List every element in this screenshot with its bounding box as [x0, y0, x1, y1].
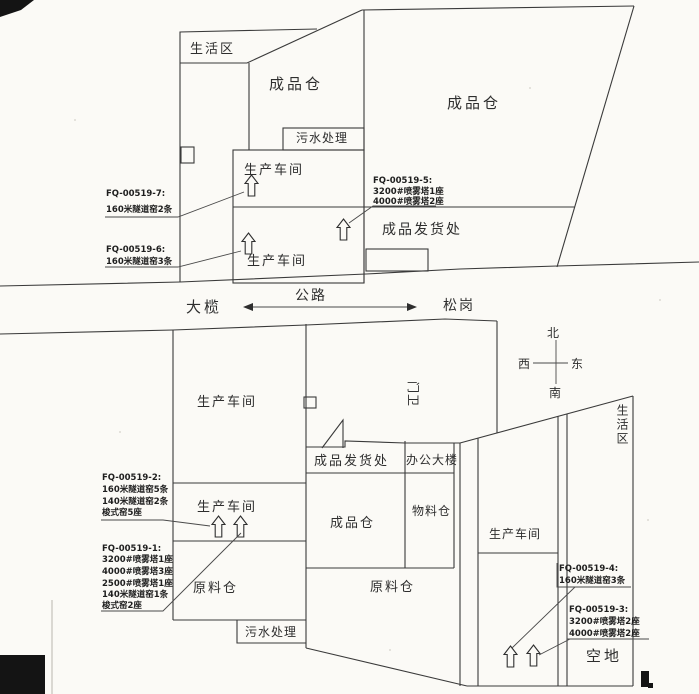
callout-fq2-id: FQ-00519-2: [102, 473, 161, 483]
callout-fq4-id: FQ-00519-4: [559, 564, 618, 574]
callout-fq2-line: 160米隧道窑5条 [102, 484, 169, 495]
callout-fq5: FQ-00519-5: 3200#喷雾塔1座 4000#喷雾塔2座 [349, 176, 444, 223]
callout-fq3-line: 3200#喷雾塔2座 [569, 616, 640, 627]
site-plan-page: 北 南 西 东 生活区 成品仓 成品仓 污水处理 生产车间 生产车间 成品发货处… [0, 0, 699, 694]
area-label-vacant-land: 空地 [586, 647, 622, 665]
area-label-office-building: 办公大楼 [406, 452, 458, 467]
kiln-chimney-icon [212, 516, 225, 537]
callout-fq3-line: 4000#喷雾塔2座 [569, 628, 640, 639]
arrowhead-east-icon [407, 303, 417, 311]
area-label-shipping-north: 成品发货处 [382, 221, 462, 238]
callout-fq2-leader [101, 520, 210, 526]
spray-tower-icon [527, 645, 540, 666]
area-label-sewage-south: 污水处理 [245, 625, 297, 639]
area-label-raw-warehouse-right: 原料仓 [370, 580, 415, 595]
callout-fq6-id: FQ-00519-6: [106, 245, 165, 255]
area-label-workshop-main: 生产车间 [197, 394, 257, 410]
callout-fq3-id: FQ-00519-3: [569, 605, 628, 615]
road-lines [0, 262, 699, 334]
callout-fq4-leader [512, 587, 575, 648]
compass-west-label: 西 [518, 357, 530, 371]
compass: 北 南 西 东 [518, 326, 583, 400]
kiln-chimney-icon [245, 175, 258, 196]
area-label-workshop-small: 生产车间 [197, 499, 257, 515]
scan-artifacts [0, 0, 661, 694]
callout-fq1-line: 4000#喷雾塔3座 [102, 566, 173, 577]
spray-tower-icon [337, 219, 350, 240]
corner-smudge-top-left [0, 0, 34, 17]
site-south-labels: 生产车间 生产车间 原料仓 污水处理 成品发货处 成品仓 办公大楼 物料仓 原料… [193, 381, 629, 665]
road-east-town-label: 松岗 [443, 298, 475, 314]
area-label-living-north: 生活区 [190, 42, 235, 57]
callout-fq5-leader [349, 206, 436, 223]
area-label-workshop-lower: 生产车间 [247, 253, 307, 269]
callout-fq6-line: 160米隧道窑3条 [106, 256, 173, 267]
compass-east-label: 东 [571, 357, 583, 371]
area-label-workshop-upper: 生产车间 [244, 162, 304, 178]
ink-dot-bottom-right [648, 683, 653, 688]
kiln-chimney-icon [504, 646, 517, 667]
area-label-finished-warehouse-south: 成品仓 [330, 516, 375, 531]
callout-fq4-line: 160米隧道窑3条 [559, 575, 626, 586]
callout-fq5-line: 3200#喷雾塔1座 [373, 186, 444, 197]
area-label-material-warehouse: 物料仓 [412, 504, 451, 518]
callout-fq3-leader [539, 639, 570, 655]
road-direction-arrow [243, 303, 417, 311]
kiln-chimney-icon [242, 233, 255, 254]
area-label-finished-warehouse-right: 成品仓 [447, 94, 501, 112]
callout-fq5-line: 4000#喷雾塔2座 [373, 196, 444, 207]
callout-fq7-line: 160米隧道窑2条 [106, 204, 173, 215]
road-name-label: 公路 [295, 288, 327, 304]
callout-fq7: FQ-00519-7: 160米隧道窑2条 [105, 189, 244, 217]
callout-fq6: FQ-00519-6: 160米隧道窑3条 [105, 245, 241, 267]
area-label-sewage-north: 污水处理 [296, 131, 348, 145]
area-label-raw-warehouse-left: 原料仓 [193, 581, 238, 596]
callout-fq7-id: FQ-00519-7: [106, 189, 165, 199]
road-west-town-label: 大榄 [186, 298, 222, 316]
site-plan-drawing: 北 南 西 东 生活区 成品仓 成品仓 污水处理 生产车间 生产车间 成品发货处… [0, 0, 699, 694]
arrowhead-west-icon [243, 303, 253, 311]
compass-north-label: 北 [547, 326, 559, 340]
area-label-finished-warehouse-left: 成品仓 [269, 75, 323, 93]
area-label-gatehouse: 门卫 [406, 381, 421, 407]
callout-fq1-id: FQ-00519-1: [102, 544, 161, 554]
ink-bar-bottom-right [641, 671, 649, 687]
compass-south-label: 南 [549, 385, 561, 400]
area-label-shipping-south: 成品发货处 [314, 453, 389, 469]
area-label-living-south: 生活区 [615, 404, 629, 446]
callout-fq1-line: 140米隧道窑1条 [102, 589, 169, 600]
road-labels: 大榄 公路 松岗 [186, 288, 475, 316]
callout-fq1-line: 3200#喷雾塔1座 [102, 554, 173, 565]
callout-fq5-id: FQ-00519-5: [373, 176, 432, 186]
callout-fq1-line: 梭式窑2座 [102, 600, 142, 611]
callout-fq2: FQ-00519-2: 160米隧道窑5条 140米隧道窑2条 梭式窑5座 [101, 473, 210, 526]
callout-fq1-line: 2500#喷雾塔1座 [102, 578, 173, 589]
corner-smudge-bottom-left [0, 655, 45, 694]
area-label-workshop-east: 生产车间 [489, 526, 541, 541]
callout-fq2-line: 140米隧道窑2条 [102, 496, 169, 507]
callout-fq1: FQ-00519-1: 3200#喷雾塔1座 4000#喷雾塔3座 2500#喷… [101, 533, 241, 611]
callout-fq2-line: 梭式窑5座 [102, 507, 142, 518]
